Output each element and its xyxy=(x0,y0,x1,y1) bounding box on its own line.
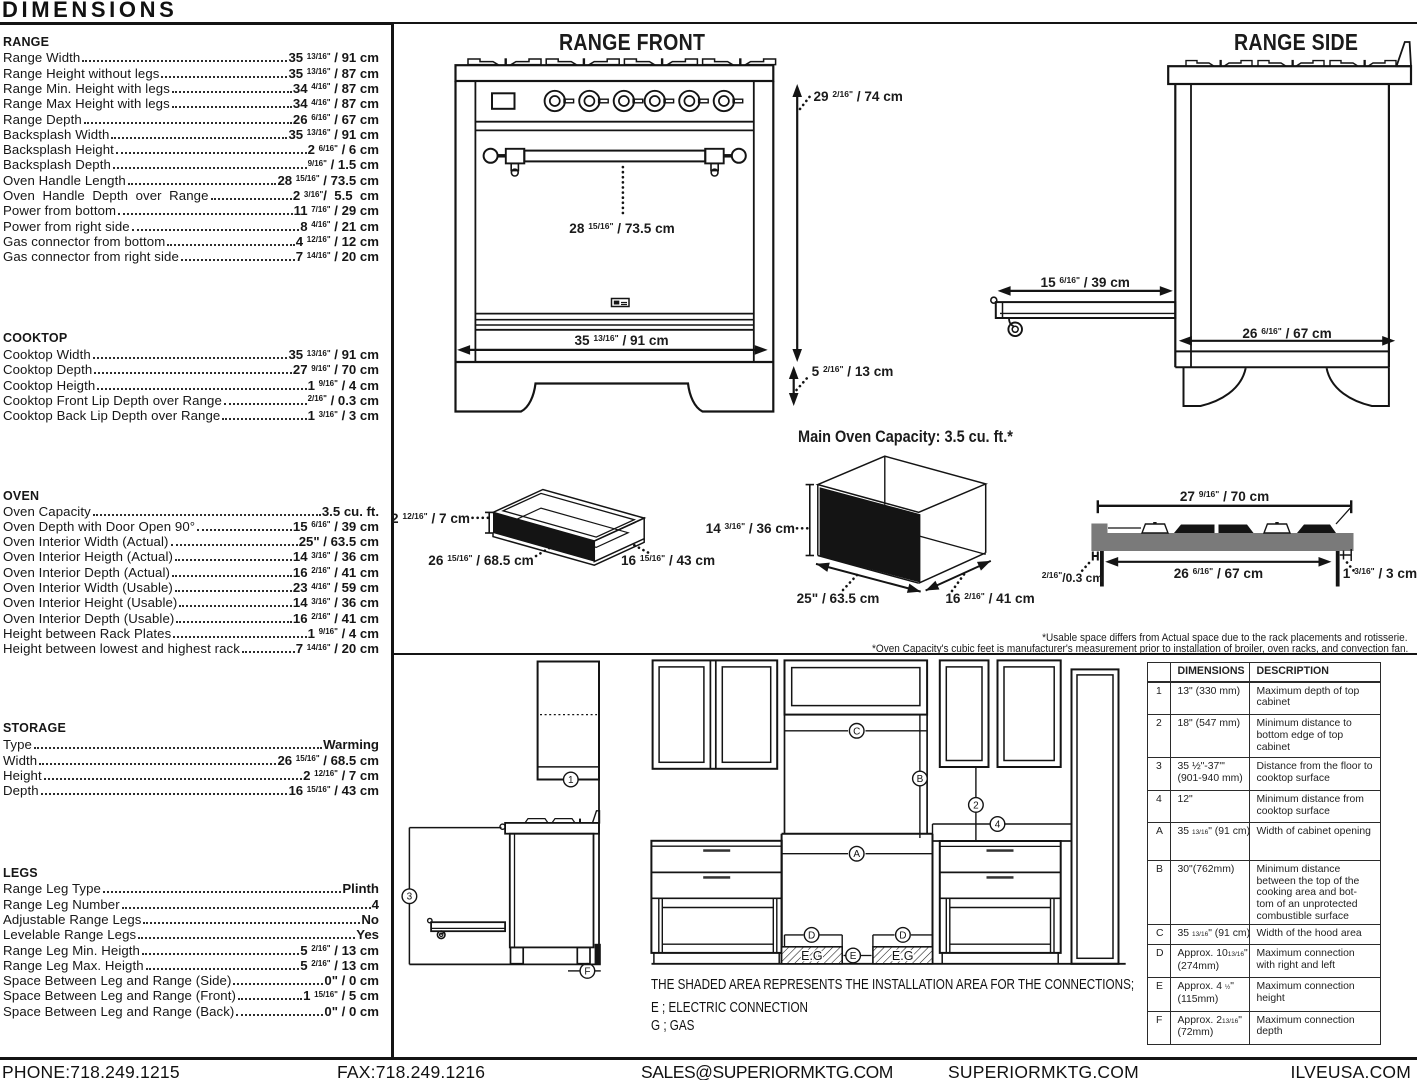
svg-text:E.G: E.G xyxy=(892,949,914,963)
svg-text:2: 2 xyxy=(973,800,979,811)
svg-text:D: D xyxy=(808,930,815,941)
svg-text:4: 4 xyxy=(995,820,1001,831)
svg-text:B: B xyxy=(917,774,924,785)
svg-text:D: D xyxy=(899,930,906,941)
svg-text:E: E xyxy=(850,951,857,962)
svg-text:E.G: E.G xyxy=(801,949,823,963)
svg-text:F: F xyxy=(584,966,590,977)
svg-text:C: C xyxy=(853,726,860,737)
svg-text:A: A xyxy=(853,849,860,860)
svg-text:1: 1 xyxy=(568,775,574,786)
svg-text:3: 3 xyxy=(407,892,413,903)
